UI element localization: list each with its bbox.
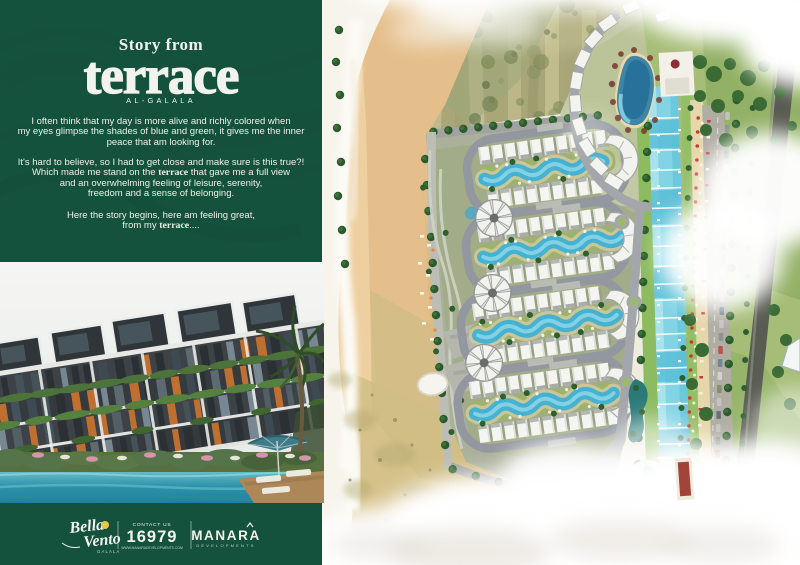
- svg-text:Vento: Vento: [83, 530, 122, 551]
- svg-text:DEVELOPMENTS: DEVELOPMENTS: [196, 543, 255, 548]
- svg-text:WWW.MANARADEVELOPMENTS.COM: WWW.MANARADEVELOPMENTS.COM: [121, 546, 183, 550]
- svg-text:GALALA: GALALA: [97, 549, 121, 554]
- svg-text:16979: 16979: [127, 528, 178, 546]
- svg-text:MANARA: MANARA: [191, 528, 261, 543]
